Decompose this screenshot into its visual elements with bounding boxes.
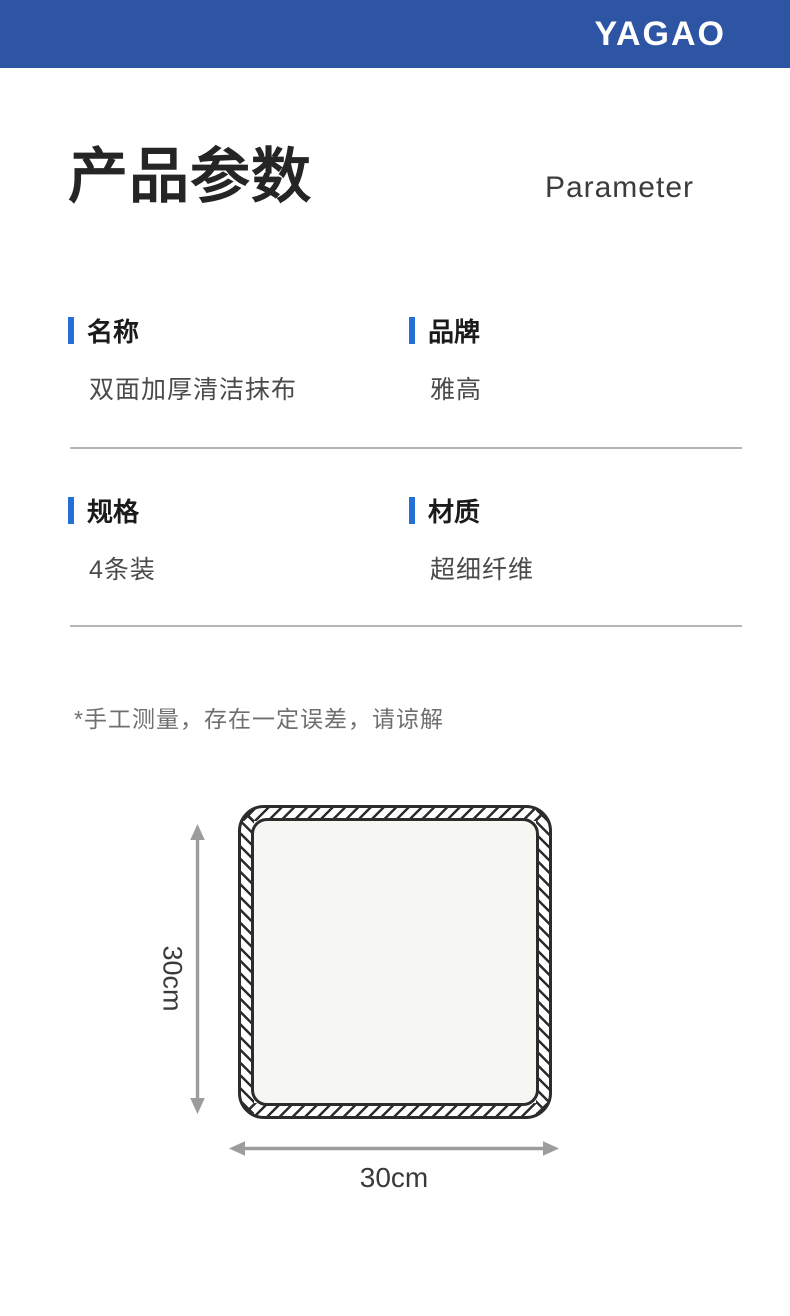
param-name-label: 名称: [87, 312, 139, 349]
param-brand-label: 品牌: [428, 312, 480, 349]
param-material: 材质 超细纤维: [409, 494, 750, 586]
param-spec-header: 规格: [68, 494, 409, 526]
param-brand-value: 雅高: [430, 370, 750, 406]
product-parameter-page: YAGAO 产品参数 Parameter 名称 双面加厚清洁抹布 品牌 雅高 规…: [0, 0, 790, 1316]
accent-bar-icon: [409, 317, 415, 344]
param-brand: 品牌 雅高: [409, 314, 750, 406]
param-spec-label: 规格: [87, 492, 139, 529]
param-material-value: 超细纤维: [430, 550, 750, 586]
height-dimension-label: 30cm: [157, 945, 188, 1011]
width-dimension-label: 30cm: [229, 1162, 559, 1194]
param-row-2: 规格 4条装 材质 超细纤维: [68, 494, 750, 586]
accent-bar-icon: [68, 317, 74, 344]
param-name-value: 双面加厚清洁抹布: [89, 370, 409, 406]
horizontal-dimension-arrow-icon: [229, 1140, 559, 1157]
divider: [70, 447, 742, 449]
measurement-note: *手工测量，存在一定误差，请谅解: [74, 700, 444, 734]
page-title: 产品参数: [68, 144, 312, 210]
title-row: 产品参数 Parameter: [0, 144, 790, 210]
cloth-illustration: [238, 805, 552, 1119]
accent-bar-icon: [409, 497, 415, 524]
param-material-label: 材质: [428, 492, 480, 529]
param-name: 名称 双面加厚清洁抹布: [68, 314, 409, 406]
param-row-1: 名称 双面加厚清洁抹布 品牌 雅高: [68, 314, 750, 406]
divider: [70, 625, 742, 627]
param-brand-header: 品牌: [409, 314, 750, 346]
cloth-inner-panel: [251, 818, 539, 1106]
accent-bar-icon: [68, 497, 74, 524]
param-material-header: 材质: [409, 494, 750, 526]
brand-header: YAGAO: [0, 0, 790, 68]
param-name-header: 名称: [68, 314, 409, 346]
vertical-dimension-arrow-icon: [189, 824, 206, 1114]
brand-logo: YAGAO: [594, 17, 726, 51]
param-spec: 规格 4条装: [68, 494, 409, 586]
page-subtitle: Parameter: [545, 171, 694, 205]
dimension-diagram: 30cm 30cm: [0, 760, 790, 1230]
param-spec-value: 4条装: [89, 550, 409, 586]
